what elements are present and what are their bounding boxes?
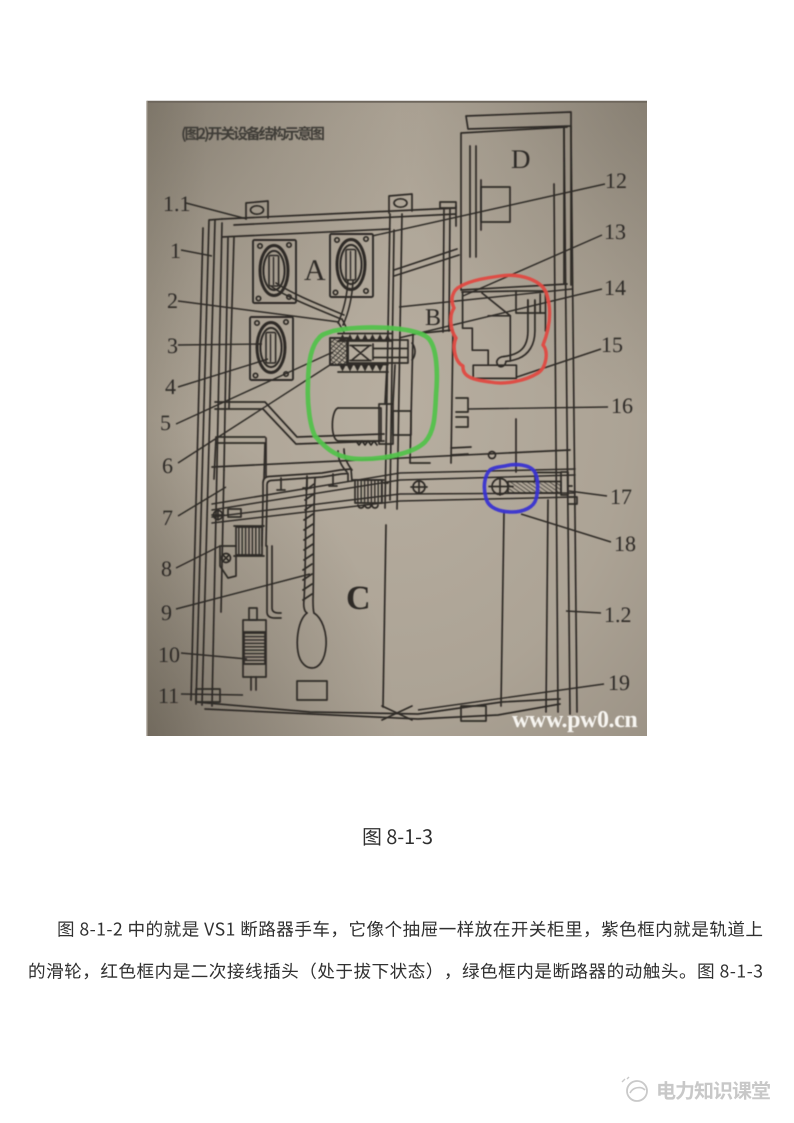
svg-text:www.pw0.cn: www.pw0.cn [512, 707, 637, 733]
svg-text:10: 10 [158, 642, 180, 667]
svg-text:5: 5 [160, 410, 171, 435]
svg-text:16: 16 [611, 393, 633, 418]
svg-text:15: 15 [601, 332, 623, 357]
svg-text:1.2: 1.2 [604, 602, 632, 627]
svg-text:8: 8 [161, 556, 172, 581]
svg-text:7: 7 [162, 505, 173, 530]
svg-text:13: 13 [604, 219, 626, 244]
svg-text:17: 17 [610, 484, 632, 509]
svg-text:4: 4 [165, 374, 176, 399]
svg-text:6: 6 [162, 453, 173, 478]
svg-text:9: 9 [161, 600, 172, 625]
svg-text:1.1: 1.1 [163, 191, 191, 216]
svg-text:18: 18 [614, 531, 636, 556]
svg-text:2: 2 [167, 288, 178, 313]
svg-text:11: 11 [158, 683, 179, 708]
svg-text:B: B [425, 305, 441, 331]
svg-text:14: 14 [604, 275, 626, 300]
svg-text:19: 19 [608, 670, 630, 695]
svg-text:12: 12 [605, 168, 627, 193]
svg-text:3: 3 [167, 333, 178, 358]
svg-text:D: D [511, 144, 531, 174]
svg-text:A: A [304, 254, 326, 287]
svg-text:1: 1 [170, 238, 181, 263]
svg-text:C: C [346, 580, 371, 617]
